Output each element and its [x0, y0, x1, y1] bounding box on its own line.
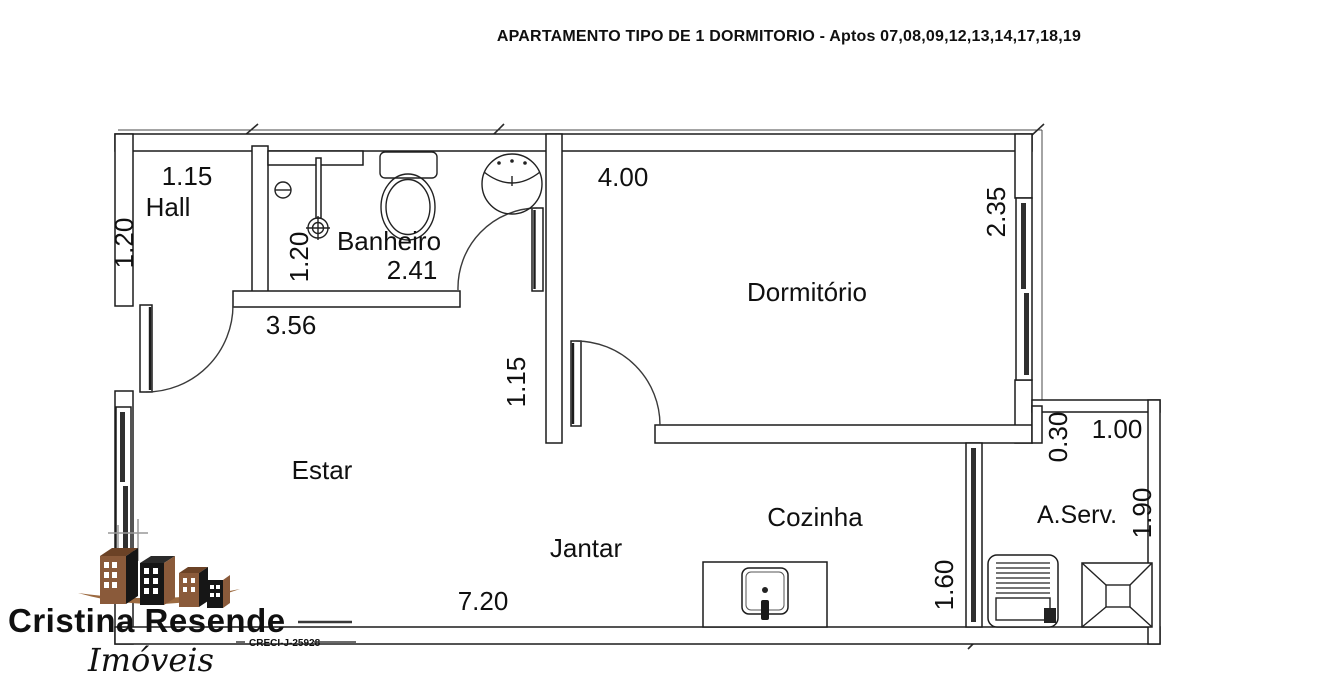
label-banheiro: Banheiro [337, 226, 441, 256]
dormitorio-window [1016, 198, 1032, 380]
page: APARTAMENTO TIPO DE 1 DORMITORIO - Aptos… [0, 0, 1319, 680]
entry-door [140, 305, 233, 392]
dormitorio-door [571, 341, 660, 426]
label-dormitorio: Dormitório [747, 277, 867, 307]
kitchen-fixtures [703, 562, 827, 627]
label-estar: Estar [292, 455, 353, 485]
dim-hall-width: 1.15 [162, 161, 213, 191]
dim-dormitorio-depth: 2.35 [981, 187, 1011, 238]
shower-icon [306, 158, 330, 240]
dim-apartment-width: 7.20 [458, 586, 509, 616]
shower-valve-icon [275, 182, 291, 198]
dim-banheiro-width: 2.41 [387, 255, 438, 285]
dim-aserv-depth: 1.90 [1127, 488, 1157, 539]
creci-license: CRECI-J-25928 [249, 638, 321, 649]
washing-machine-icon [988, 555, 1058, 627]
dim-aserv-width: 1.00 [1092, 414, 1143, 444]
dim-cozinha-depth: 1.60 [929, 560, 959, 611]
brand-name: Cristina Resende [8, 602, 286, 639]
dim-aserv-recess: 0.30 [1043, 412, 1073, 463]
kitchen-sink-icon [742, 568, 788, 620]
dim-banheiro-depth: 1.20 [284, 232, 314, 283]
logo-buildings-icon [78, 548, 240, 608]
laundry-tank-icon [1082, 563, 1152, 627]
dim-hall-depth: 1.20 [109, 218, 139, 269]
dim-dormitorio-width: 4.00 [598, 162, 649, 192]
label-aserv: A.Serv. [1037, 501, 1117, 529]
dim-passage-depth: 1.15 [501, 357, 531, 408]
service-fixtures [988, 555, 1152, 627]
cozinha-aserv-glass-partition [966, 443, 982, 627]
brand-tagline: Imóveis [87, 641, 214, 679]
brand-logo: Cristina Resende CRECI-J-25928 Imóveis [0, 505, 370, 680]
label-jantar: Jantar [550, 533, 623, 563]
label-cozinha: Cozinha [767, 502, 863, 532]
label-hall: Hall [146, 192, 191, 222]
bathroom-sink-icon [482, 154, 542, 214]
dim-estar-wall: 3.56 [266, 310, 317, 340]
banheiro-door [458, 208, 543, 291]
